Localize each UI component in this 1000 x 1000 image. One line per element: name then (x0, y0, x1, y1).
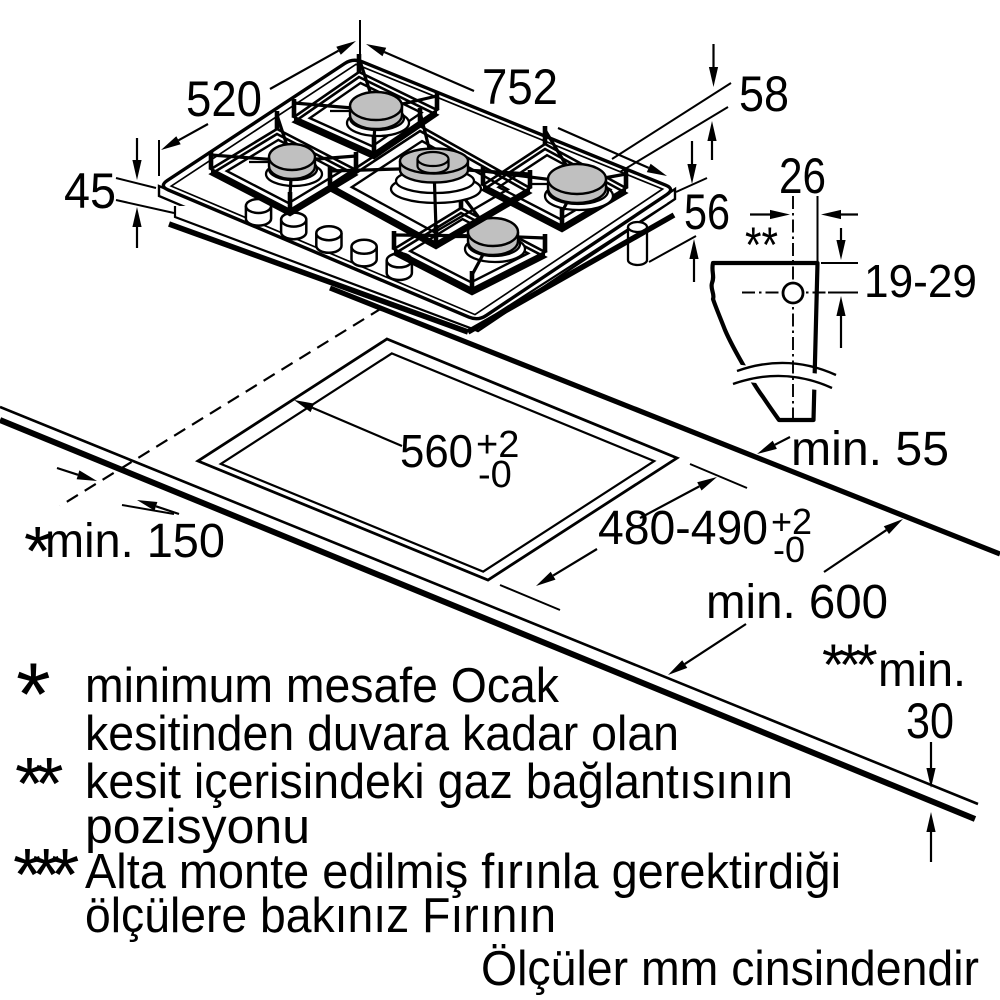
svg-text:**: ** (745, 217, 778, 273)
svg-text:-0: -0 (773, 529, 805, 570)
svg-text:min.: min. (878, 644, 966, 697)
svg-text:minimum mesafe Ocak: minimum mesafe Ocak (85, 659, 559, 713)
svg-text:45: 45 (64, 163, 116, 219)
svg-text:***: *** (822, 633, 877, 698)
svg-text:752: 752 (482, 59, 558, 115)
svg-text:*: * (16, 644, 51, 744)
svg-text:520: 520 (186, 71, 262, 127)
svg-text:Ölçüler mm cinsindendir: Ölçüler mm cinsindendir (481, 942, 979, 996)
svg-text:30: 30 (906, 693, 954, 749)
svg-text:kesitinden duvara kadar olan: kesitinden duvara kadar olan (85, 707, 679, 761)
svg-text:56: 56 (684, 184, 730, 240)
svg-text:19-29: 19-29 (864, 255, 977, 307)
svg-text:**: ** (15, 742, 63, 825)
svg-text:-0: -0 (478, 454, 512, 496)
svg-text:26: 26 (779, 148, 826, 204)
svg-text:***: *** (13, 833, 79, 916)
svg-text:560: 560 (400, 425, 473, 477)
svg-text:min. 150: min. 150 (45, 515, 225, 568)
svg-text:min. 55: min. 55 (791, 423, 949, 476)
svg-text:58: 58 (739, 66, 789, 122)
svg-text:480-490: 480-490 (598, 502, 768, 555)
svg-text:min. 600: min. 600 (706, 576, 888, 629)
svg-text:ölçülere bakınız Fırının: ölçülere bakınız Fırının (85, 889, 556, 943)
